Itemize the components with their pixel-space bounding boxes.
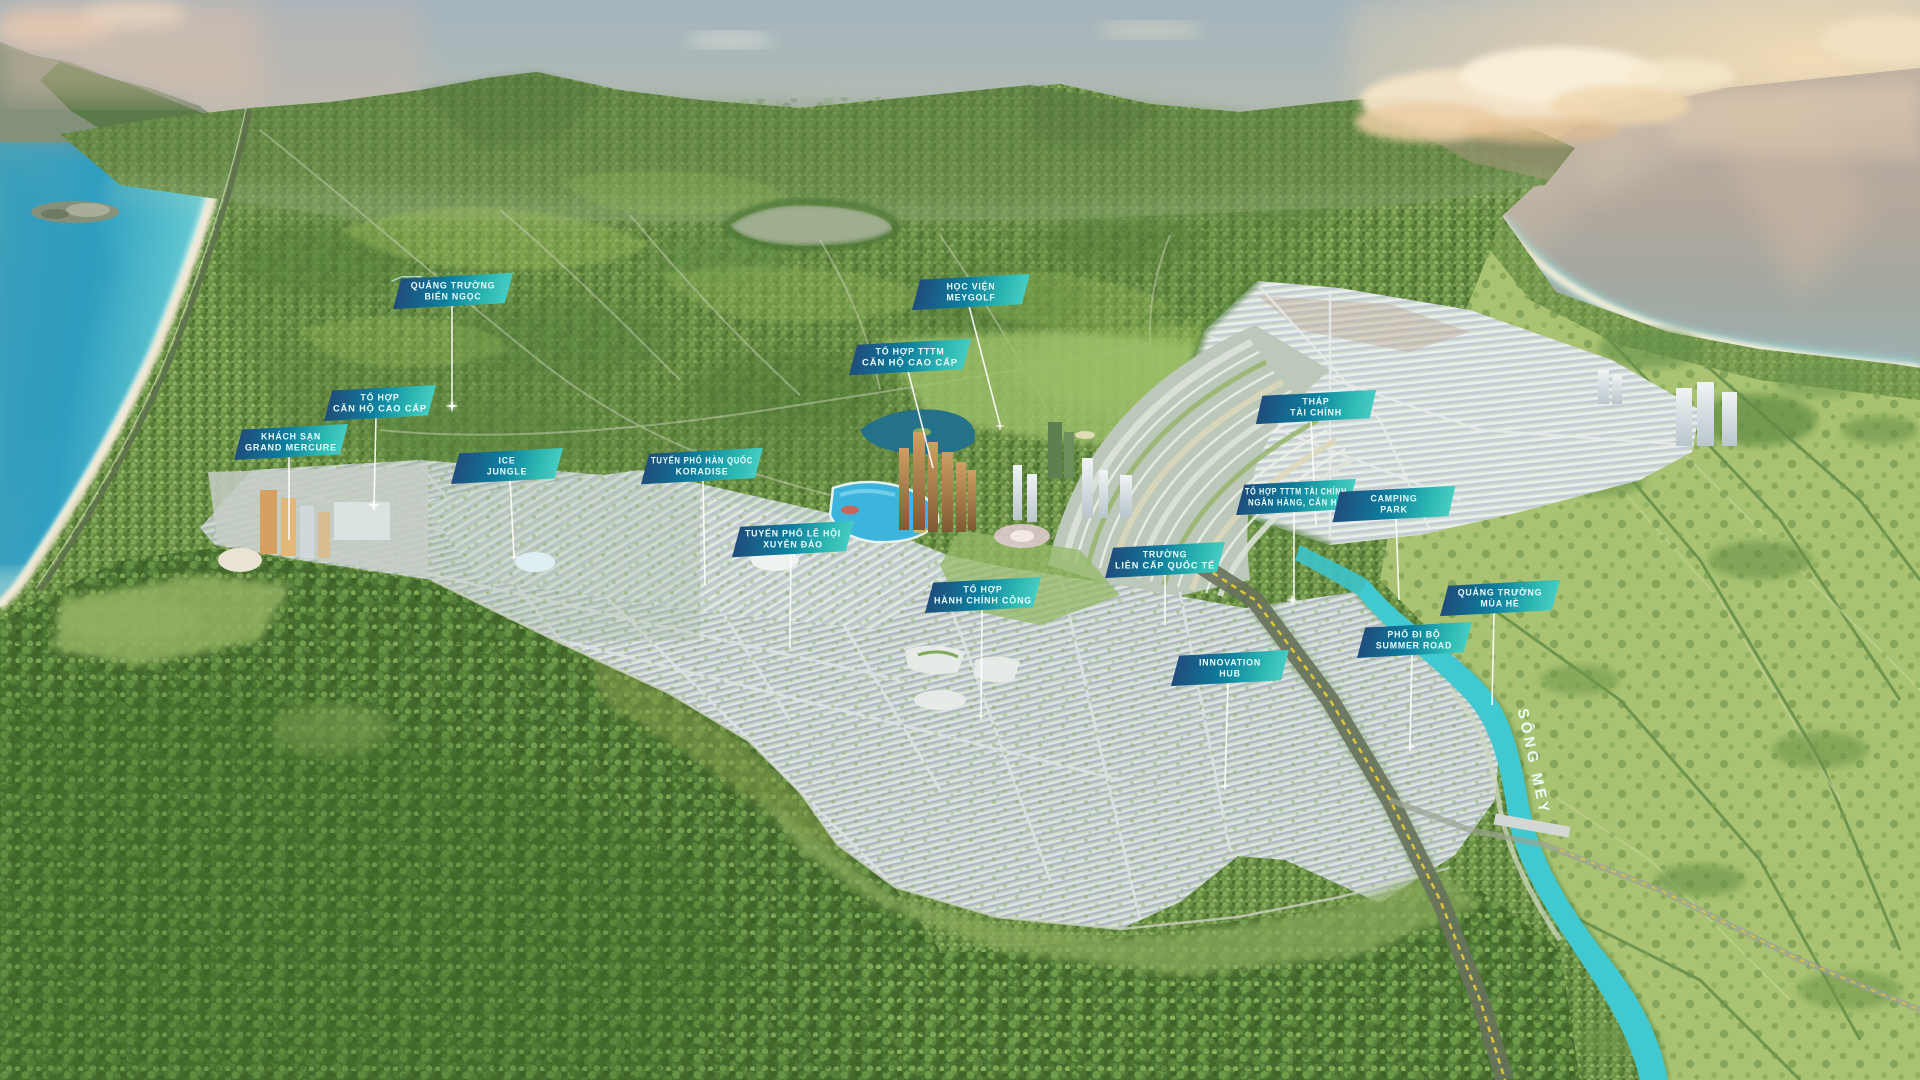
- svg-text:QUẢNG TRƯỜNG: QUẢNG TRƯỜNG: [411, 280, 496, 291]
- svg-text:CĂN HỘ CAO CẤP: CĂN HỘ CAO CẤP: [862, 357, 958, 368]
- svg-text:HÀNH CHÍNH CÔNG: HÀNH CHÍNH CÔNG: [934, 595, 1032, 606]
- svg-text:TỔ HỢP: TỔ HỢP: [963, 584, 1002, 595]
- svg-text:QUẢNG TRƯỜNG: QUẢNG TRƯỜNG: [1458, 587, 1543, 598]
- svg-text:SUMMER ROAD: SUMMER ROAD: [1376, 641, 1452, 651]
- svg-text:MEYGOLF: MEYGOLF: [946, 293, 995, 303]
- svg-text:GRAND MERCURE: GRAND MERCURE: [245, 443, 337, 453]
- svg-text:XUYÊN ĐẢO: XUYÊN ĐẢO: [763, 539, 823, 550]
- svg-text:TUYẾN PHỐ LỄ HỘI: TUYẾN PHỐ LỄ HỘI: [745, 528, 841, 539]
- svg-text:TÀI CHÍNH: TÀI CHÍNH: [1290, 408, 1342, 418]
- svg-text:NGÂN HÀNG, CĂN HỘ: NGÂN HÀNG, CĂN HỘ: [1248, 497, 1344, 508]
- svg-text:CAMPING: CAMPING: [1370, 494, 1417, 504]
- svg-text:INNOVATION: INNOVATION: [1199, 658, 1261, 668]
- svg-text:ICE: ICE: [498, 456, 515, 466]
- svg-text:BIỂN NGỌC: BIỂN NGỌC: [424, 291, 481, 302]
- svg-text:HUB: HUB: [1219, 669, 1240, 679]
- svg-text:TUYẾN PHỐ HÀN QUỐC: TUYẾN PHỐ HÀN QUỐC: [651, 455, 753, 466]
- svg-text:PHỐ ĐI BỘ: PHỐ ĐI BỘ: [1387, 629, 1440, 640]
- svg-text:HỌC VIỆN: HỌC VIỆN: [947, 281, 996, 292]
- svg-text:TRƯỜNG: TRƯỜNG: [1143, 549, 1188, 560]
- svg-text:PARK: PARK: [1380, 505, 1407, 515]
- svg-text:JUNGLE: JUNGLE: [487, 467, 527, 477]
- svg-text:THÁP: THÁP: [1302, 397, 1329, 407]
- svg-text:TỔ HỢP TTTM: TỔ HỢP TTTM: [876, 346, 945, 357]
- svg-text:TỔ HỢP TTTM TÀI CHÍNH: TỔ HỢP TTTM TÀI CHÍNH: [1245, 486, 1347, 497]
- svg-text:LIÊN CẤP QUỐC TẾ: LIÊN CẤP QUỐC TẾ: [1115, 560, 1215, 571]
- svg-text:CĂN HỘ CAO CẤP: CĂN HỘ CAO CẤP: [333, 403, 427, 414]
- svg-text:MÙA HÈ: MÙA HÈ: [1480, 598, 1519, 609]
- svg-text:KORADISE: KORADISE: [676, 467, 729, 477]
- svg-text:KHÁCH SẠN: KHÁCH SẠN: [261, 432, 321, 442]
- svg-text:TỔ HỢP: TỔ HỢP: [360, 392, 399, 403]
